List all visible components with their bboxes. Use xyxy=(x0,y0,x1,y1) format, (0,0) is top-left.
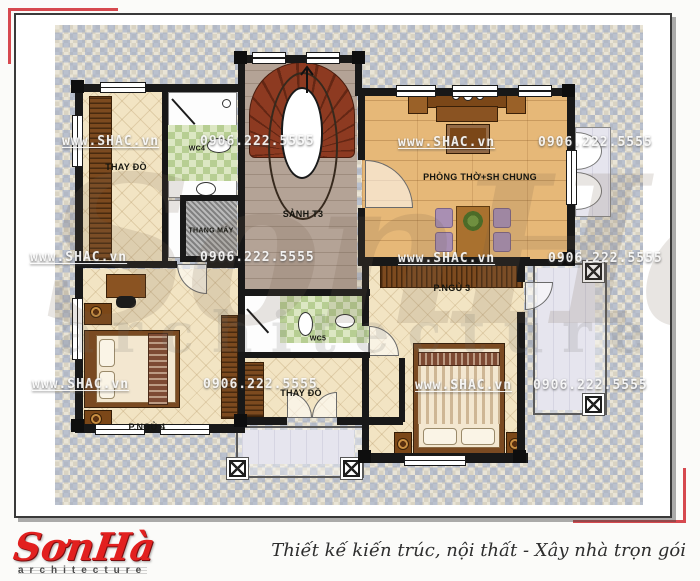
company-slogan: Thiết kế kiến trúc, nội thất - Xây nhà t… xyxy=(271,540,686,561)
shower-head xyxy=(222,99,231,108)
plan-panel: SonHa architecture www.SHAC.vn0906.222.5… xyxy=(14,13,672,518)
company-logo-subtext: architecture xyxy=(18,565,147,576)
room-label-wc5: WC5 xyxy=(310,336,326,343)
balcony-floor-bottom xyxy=(242,430,354,464)
column-marker xyxy=(585,396,602,413)
column-marker xyxy=(229,460,246,477)
corner-accent-bottom xyxy=(573,520,686,523)
window xyxy=(518,85,552,97)
corner-accent-left xyxy=(8,8,11,64)
website-watermark: www.SHAC.vn xyxy=(62,134,159,149)
room-label-bedroom4: P.NGỦ 4 xyxy=(129,422,166,432)
pillar xyxy=(71,80,84,93)
pillow xyxy=(461,428,495,445)
phone-watermark: 0906.222.5555 xyxy=(533,378,648,393)
altar-wing xyxy=(408,94,428,114)
pillar xyxy=(358,450,371,463)
pillar xyxy=(562,84,575,97)
website-watermark: www.SHAC.vn xyxy=(398,135,495,150)
room-label-worship: PHÒNG THỜ+SH CHUNG xyxy=(423,172,537,182)
altar-wing xyxy=(506,94,526,114)
window xyxy=(404,455,466,466)
stair-direction-arrow xyxy=(296,63,318,95)
room-label-elevator: THANG MÁY xyxy=(188,228,233,235)
floor-plan-page: SonHa architecture www.SHAC.vn0906.222.5… xyxy=(0,0,700,581)
phone-watermark: 0906.222.5555 xyxy=(200,250,315,265)
pillar xyxy=(71,419,84,432)
pillar xyxy=(234,414,247,427)
wall xyxy=(337,417,403,425)
room-label-wc4: WC4 xyxy=(189,146,205,153)
room-label-dressing-bottom: THAY ĐỒ xyxy=(280,388,322,398)
corner-accent-right xyxy=(683,468,686,523)
website-watermark: www.SHAC.vn xyxy=(415,378,512,393)
window xyxy=(396,85,436,97)
altar-front xyxy=(436,106,498,122)
website-watermark: www.SHAC.vn xyxy=(30,250,127,265)
corner-accent-top xyxy=(8,8,118,11)
window xyxy=(306,52,340,64)
website-watermark: www.SHAC.vn xyxy=(398,251,495,266)
website-watermark: www.SHAC.vn xyxy=(32,377,129,392)
window xyxy=(452,85,498,97)
ghost-brand-sub-watermark: architecture xyxy=(58,300,663,366)
phone-watermark: 0906.222.5555 xyxy=(538,135,653,150)
room-label-hall: SẢNH T3 xyxy=(283,209,324,219)
company-logo: SơnHà xyxy=(11,524,158,569)
window xyxy=(160,424,210,435)
window xyxy=(100,82,146,93)
room-label-dressing-top: THAY ĐỒ xyxy=(105,162,147,172)
phone-watermark: 0906.222.5555 xyxy=(200,134,315,149)
footer-bar: SơnHà architecture Thiết kế kiến trúc, n… xyxy=(0,524,700,581)
plan-drawing: SonHa architecture www.SHAC.vn0906.222.5… xyxy=(14,13,672,518)
lamp xyxy=(397,438,409,450)
pillow xyxy=(423,428,457,445)
room-label-bedroom3: P.NGỦ 3 xyxy=(434,283,471,293)
phone-watermark: 0906.222.5555 xyxy=(548,251,663,266)
bed-blanket xyxy=(418,366,500,424)
pillar xyxy=(234,51,247,64)
window xyxy=(252,52,286,64)
pillar xyxy=(513,450,526,463)
pillar xyxy=(352,51,365,64)
